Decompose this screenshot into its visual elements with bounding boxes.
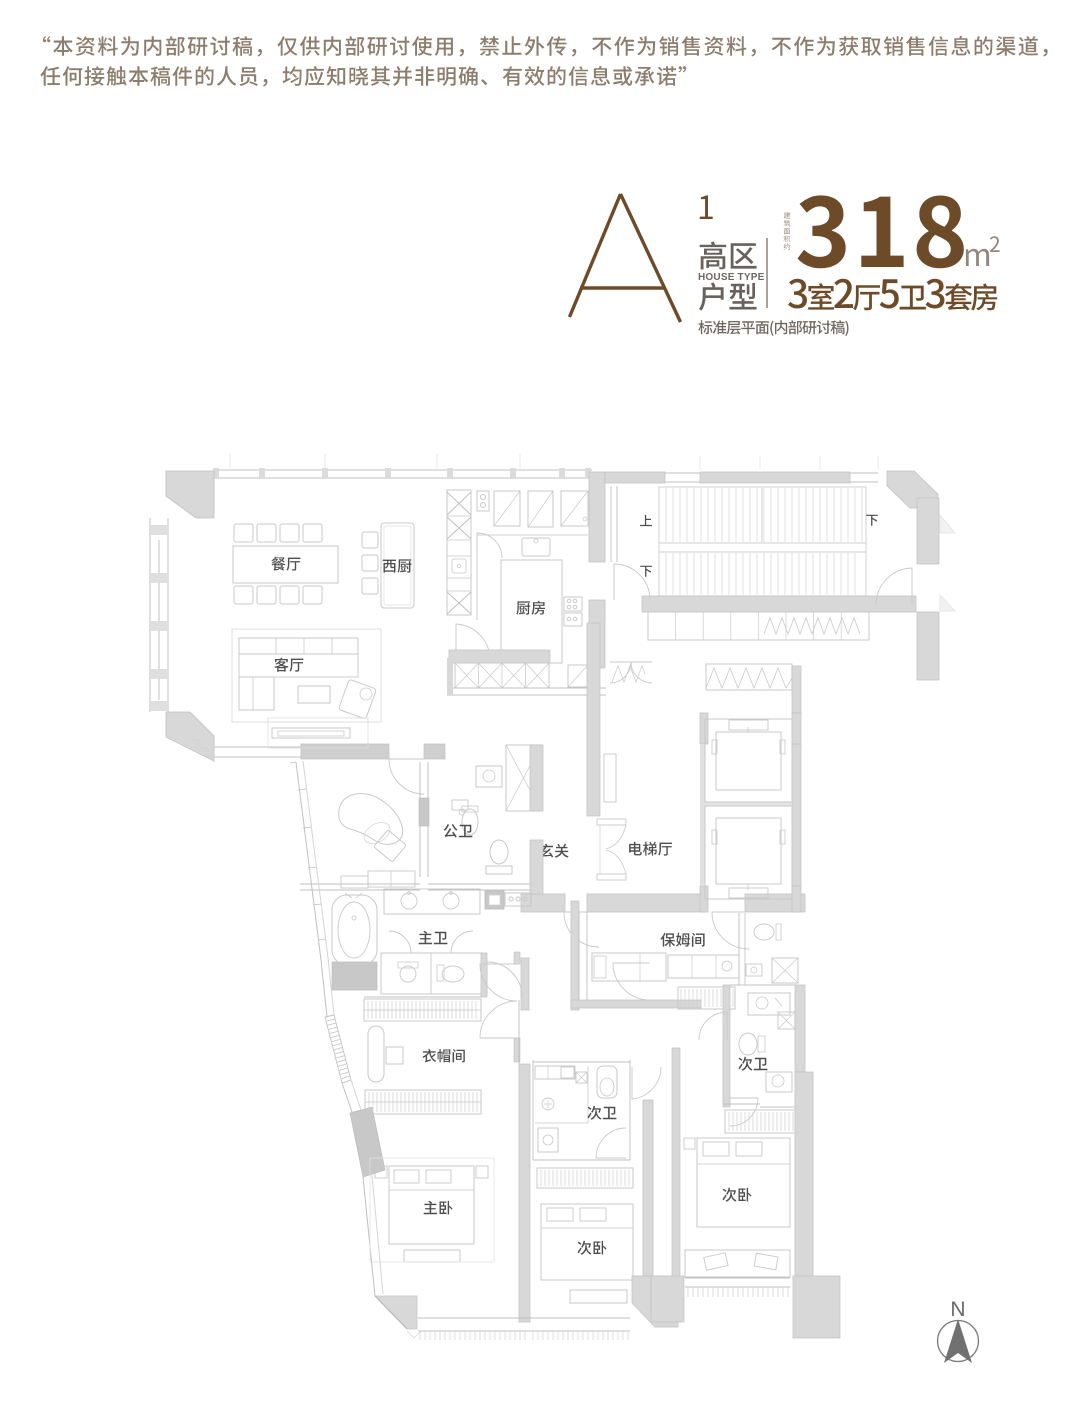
svg-text:HOUSE TYPE: HOUSE TYPE [698, 272, 765, 283]
svg-text:N: N [950, 1298, 965, 1321]
